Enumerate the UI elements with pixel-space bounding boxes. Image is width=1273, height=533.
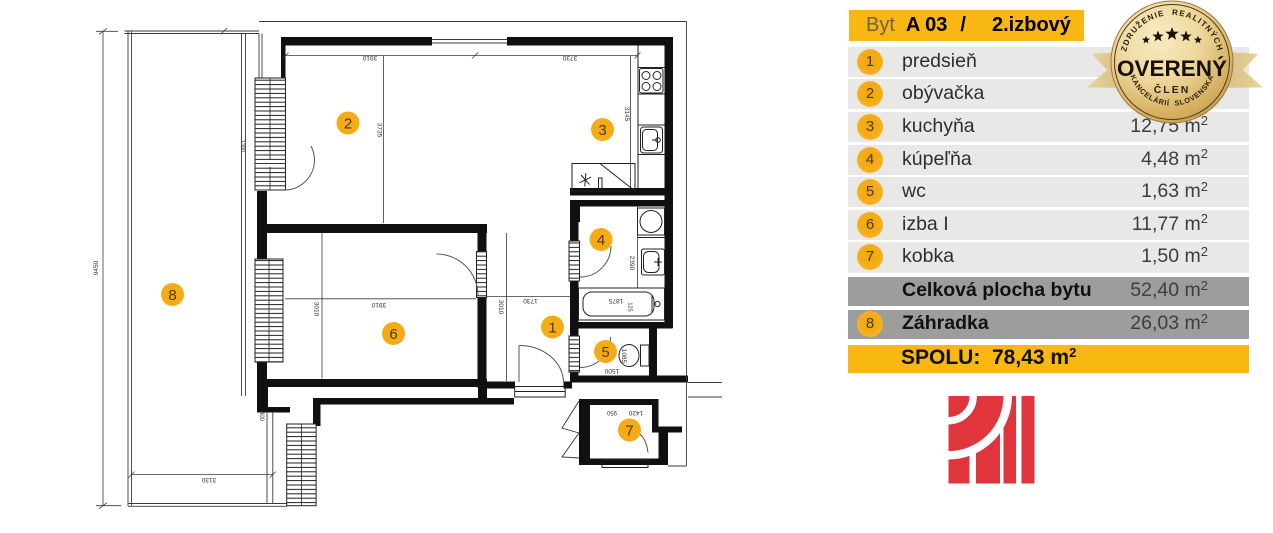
svg-text:OVERENÝ: OVERENÝ <box>1117 56 1227 81</box>
svg-text:ČLEN: ČLEN <box>1154 83 1191 96</box>
